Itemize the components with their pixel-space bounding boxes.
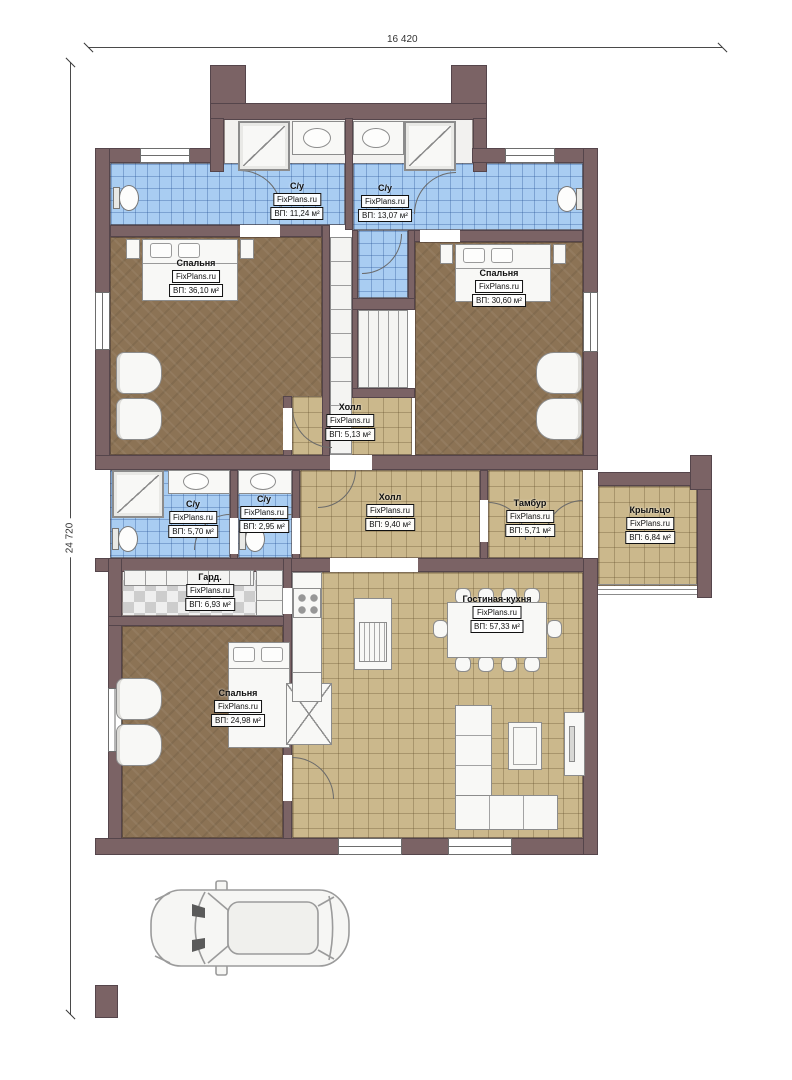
room-area: ВП: 5,13 м² — [325, 428, 375, 441]
stove — [293, 588, 321, 618]
bed-blanket-line — [229, 668, 289, 669]
shower-cabin — [112, 470, 164, 518]
watermark: FixPlans.ru — [186, 584, 234, 597]
wardrobe-shelf — [256, 570, 283, 616]
room-label-su-top-right: С/у FixPlans.ru ВП: 13,07 м² — [358, 183, 412, 222]
island-sink — [359, 622, 387, 662]
bed-pillow — [261, 647, 283, 662]
dining-chair — [524, 656, 540, 672]
wall-segment — [473, 118, 487, 172]
window — [583, 292, 598, 352]
nightstand — [126, 239, 140, 259]
room-area: ВП: 6,84 м² — [625, 531, 675, 544]
room-label-wardrobe: Гард. FixPlans.ru ВП: 6,93 м² — [185, 572, 235, 611]
dining-chair — [478, 656, 494, 672]
room-label-porch: Крыльцо FixPlans.ru ВП: 6,84 м² — [625, 505, 675, 544]
armchair — [116, 398, 162, 440]
bed-pillow — [491, 248, 513, 263]
room-name: Спальня — [219, 688, 258, 698]
room-label-living-kitchen: Гостиная-кухня FixPlans.ru ВП: 57,33 м² — [463, 594, 532, 633]
door-opening — [330, 455, 372, 470]
toilet — [557, 186, 577, 212]
dining-chair — [455, 656, 471, 672]
watermark: FixPlans.ru — [626, 517, 674, 530]
porch-steps — [598, 584, 697, 596]
nightstand — [440, 244, 453, 264]
room-label-bedroom-bottom: Спальня FixPlans.ru ВП: 24,98 м² — [211, 688, 265, 727]
room-area: ВП: 11,24 м² — [270, 207, 323, 220]
room-area: ВП: 2,95 м² — [239, 520, 289, 533]
toilet — [119, 185, 139, 211]
room-name: Спальня — [177, 258, 216, 268]
door-opening — [480, 500, 488, 542]
watermark: FixPlans.ru — [273, 193, 321, 206]
room-area: ВП: 5,70 м² — [168, 525, 218, 538]
window — [338, 838, 402, 855]
dimension-height-label: 24 720 — [65, 519, 76, 558]
room-name: Холл — [339, 402, 362, 412]
watermark: FixPlans.ru — [506, 510, 554, 523]
room-name: Тамбур — [514, 498, 547, 508]
room-name: С/у — [290, 181, 304, 191]
wall-post — [95, 985, 118, 1018]
window — [95, 292, 110, 350]
window — [140, 148, 190, 163]
room-name: С/у — [378, 183, 392, 193]
shower-cabin — [404, 121, 456, 171]
coffee-table — [508, 722, 542, 770]
sink — [183, 473, 209, 490]
room-area: ВП: 6,93 м² — [185, 598, 235, 611]
shower-cabin — [238, 121, 290, 171]
dining-chair — [547, 620, 562, 638]
watermark: FixPlans.ru — [240, 506, 288, 519]
watermark: FixPlans.ru — [326, 414, 374, 427]
room-name: Гостиная-кухня — [463, 594, 532, 604]
dimension-line-horizontal — [88, 47, 722, 48]
bed-pillow — [178, 243, 200, 258]
wall-segment — [697, 472, 712, 598]
car-top-view — [148, 876, 352, 980]
door-opening — [292, 518, 300, 554]
wall-segment — [110, 225, 322, 237]
wall-segment — [583, 558, 598, 855]
sink — [362, 128, 390, 148]
bed-pillow — [463, 248, 485, 263]
room-name: Крыльцо — [630, 505, 671, 515]
wall-segment — [345, 118, 353, 230]
door-opening — [283, 588, 292, 614]
door-opening — [283, 755, 292, 801]
armchair — [116, 724, 162, 766]
room-label-su-mid-right: С/у FixPlans.ru ВП: 2,95 м² — [239, 494, 289, 533]
watermark: FixPlans.ru — [473, 606, 521, 619]
sink — [303, 128, 331, 148]
armchair — [536, 352, 582, 394]
room-area: ВП: 57,33 м² — [470, 620, 524, 633]
room-name: Гард. — [198, 572, 221, 582]
window — [448, 838, 512, 855]
stairs — [358, 310, 408, 388]
room-area: ВП: 30,60 м² — [472, 294, 526, 307]
door-opening — [583, 498, 598, 542]
room-label-hall-main: Холл FixPlans.ru ВП: 9,40 м² — [365, 492, 415, 531]
dimension-width-label: 16 420 — [383, 34, 422, 45]
door-opening — [230, 518, 238, 554]
watermark: FixPlans.ru — [169, 511, 217, 524]
floor-plan: 16 420 24 720 — [0, 0, 792, 1080]
bed-pillow — [233, 647, 255, 662]
room-area: ВП: 9,40 м² — [365, 518, 415, 531]
room-area: ВП: 5,71 м² — [505, 524, 555, 537]
toilet-tank — [576, 188, 583, 210]
room-area: ВП: 24,98 м² — [211, 714, 265, 727]
room-label-bedroom-right: Спальня FixPlans.ru ВП: 30,60 м² — [472, 268, 526, 307]
watermark: FixPlans.ru — [172, 270, 220, 283]
door-opening — [420, 230, 460, 242]
watermark: FixPlans.ru — [361, 195, 409, 208]
wall-segment — [108, 616, 292, 626]
room-area: ВП: 36,10 м² — [169, 284, 223, 297]
wall-pillar — [690, 455, 712, 490]
door-opening — [330, 558, 418, 572]
wall-segment — [352, 388, 415, 398]
fridge — [292, 672, 322, 702]
room-label-tambour: Тамбур FixPlans.ru ВП: 5,71 м² — [505, 498, 555, 537]
window — [505, 148, 555, 163]
dining-chair — [501, 656, 517, 672]
watermark: FixPlans.ru — [475, 280, 523, 293]
nightstand — [240, 239, 254, 259]
room-label-bedroom-left: Спальня FixPlans.ru ВП: 36,10 м² — [169, 258, 223, 297]
watermark: FixPlans.ru — [214, 700, 262, 713]
room-label-su-top-left: С/у FixPlans.ru ВП: 11,24 м² — [270, 181, 323, 220]
room-label-hall-upper: Холл FixPlans.ru ВП: 5,13 м² — [325, 402, 375, 441]
room-area: ВП: 13,07 м² — [358, 209, 412, 222]
nightstand — [553, 244, 566, 264]
room-name: Спальня — [480, 268, 519, 278]
armchair — [116, 352, 162, 394]
room-label-su-mid-left: С/у FixPlans.ru ВП: 5,70 м² — [168, 499, 218, 538]
tv — [569, 726, 575, 762]
room-name: Холл — [379, 492, 402, 502]
wall-segment — [352, 298, 415, 310]
dining-chair — [433, 620, 448, 638]
toilet — [118, 526, 138, 552]
wall-segment — [352, 230, 358, 398]
watermark: FixPlans.ru — [366, 504, 414, 517]
door-opening — [283, 408, 292, 450]
room-name: С/у — [257, 494, 271, 504]
armchair — [536, 398, 582, 440]
bed-pillow — [150, 243, 172, 258]
sofa — [455, 795, 558, 830]
sink — [250, 473, 276, 490]
room-name: С/у — [186, 499, 200, 509]
wall-segment — [210, 118, 224, 172]
armchair — [116, 678, 162, 720]
door-opening — [240, 225, 280, 237]
